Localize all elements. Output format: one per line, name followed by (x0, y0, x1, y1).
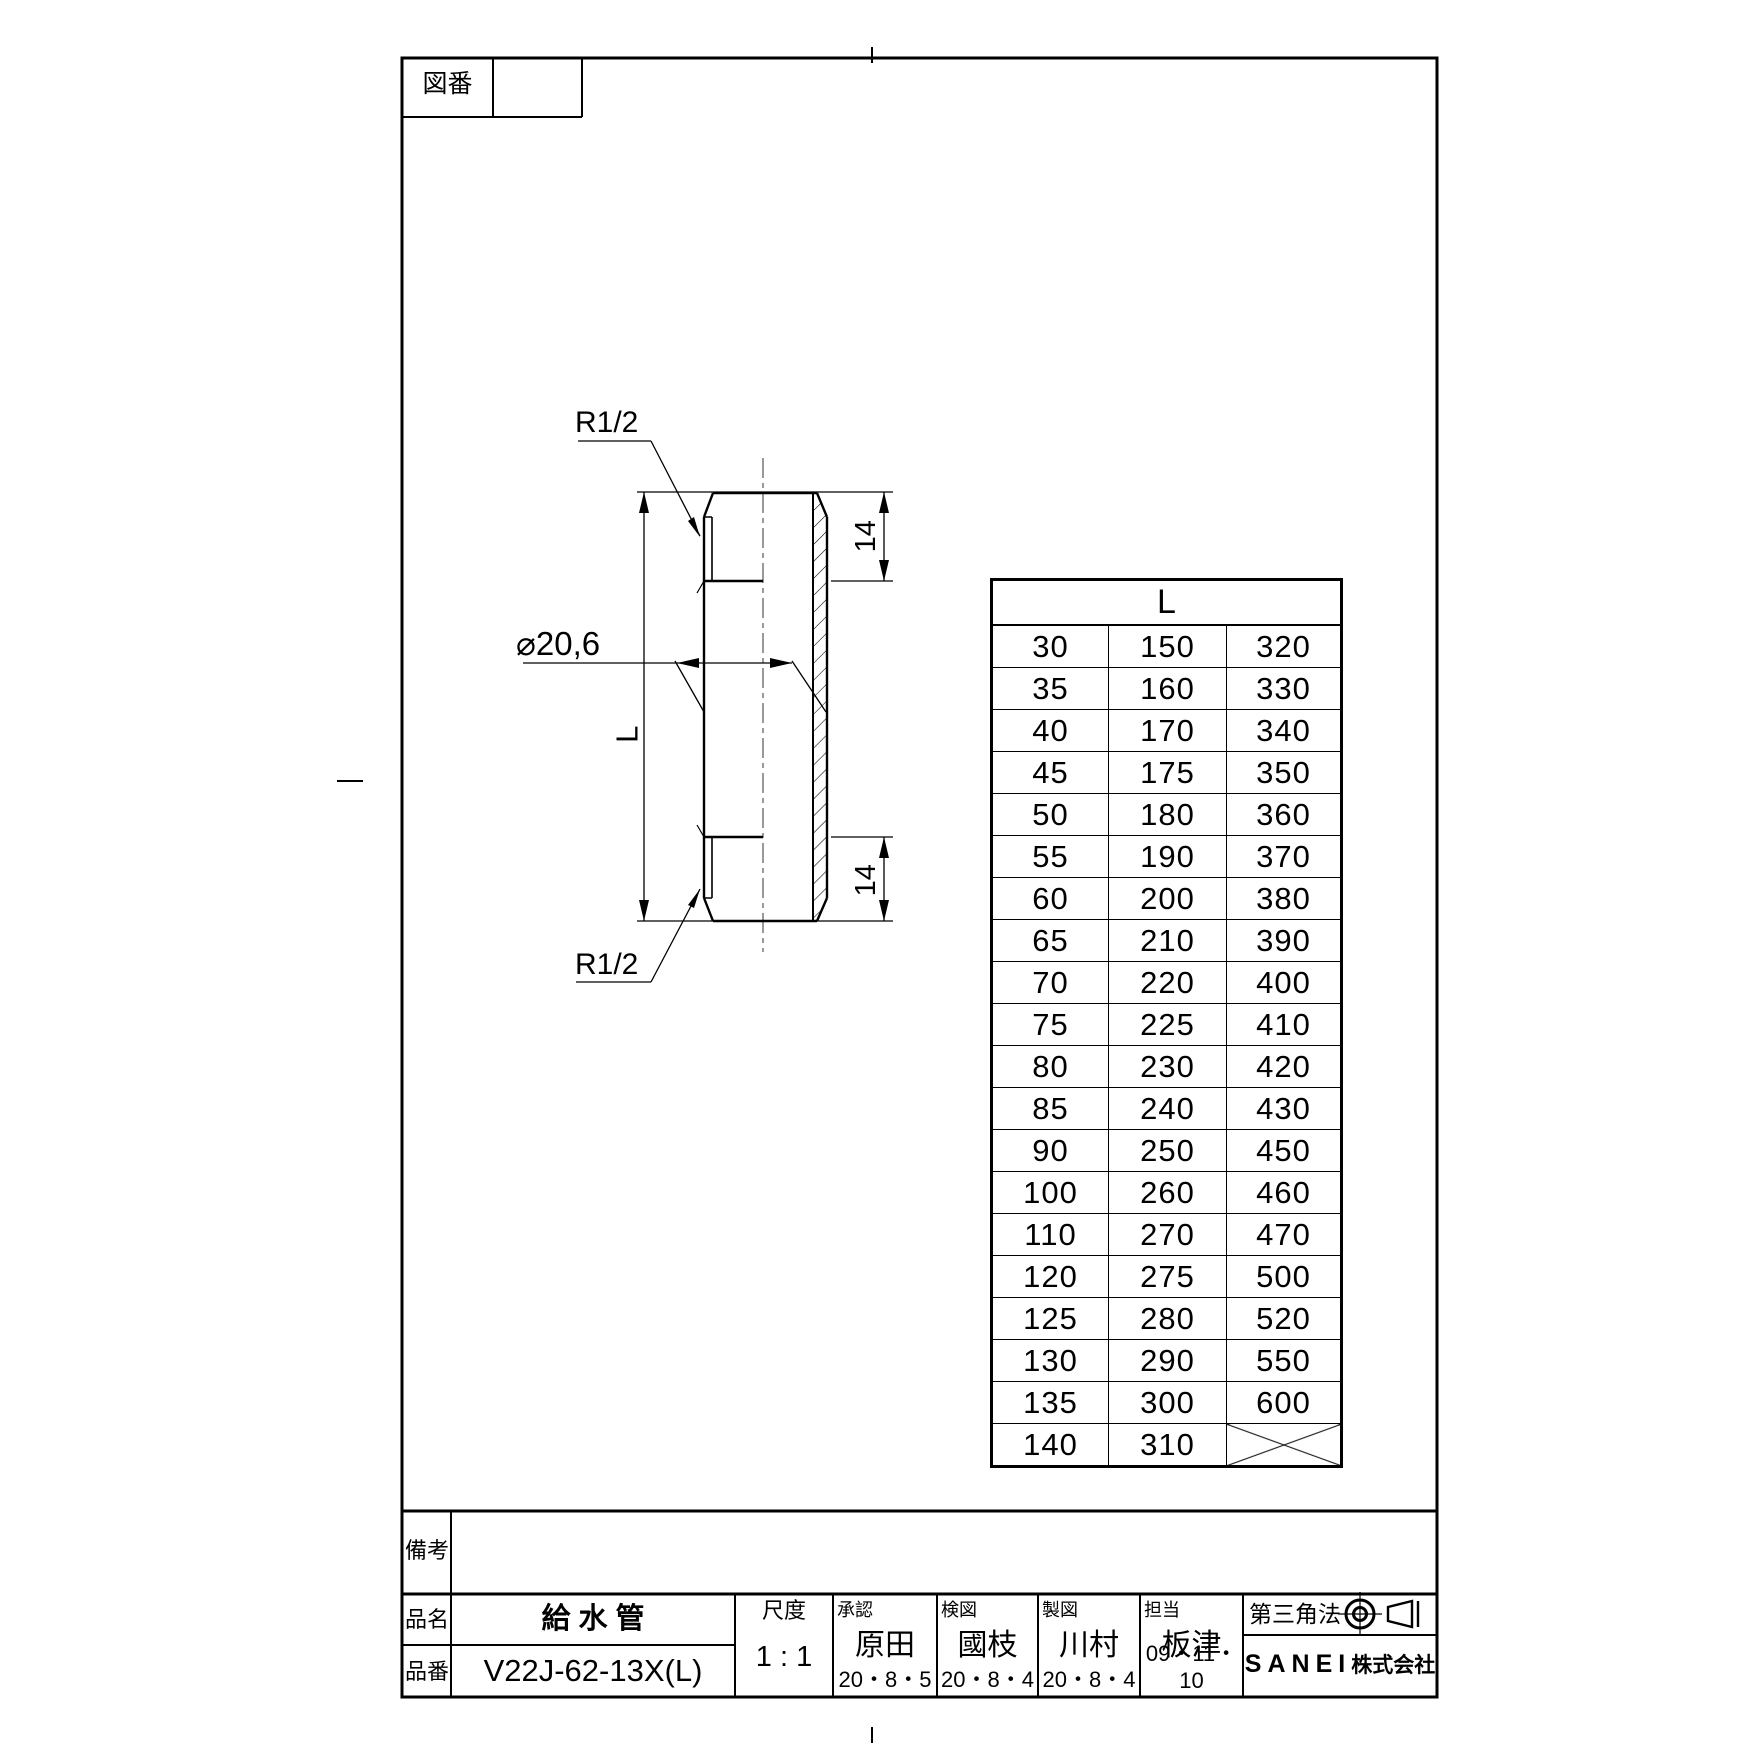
table-cell: 45 (992, 752, 1109, 794)
drafting-date: 20・8・4 (1038, 1662, 1140, 1694)
in-charge-date: 09・11・10 (1140, 1636, 1243, 1694)
section-hatching (813, 493, 827, 921)
table-cell: 160 (1109, 668, 1227, 710)
drafting-cell: 製図 川村 20・8・4 (1038, 1594, 1140, 1697)
scale-label: 尺度 (735, 1599, 833, 1622)
drafting-label: 製図 (1042, 1596, 1078, 1622)
table-row: 65210390 (992, 920, 1342, 962)
table-cell: 330 (1227, 668, 1342, 710)
diameter-label: ⌀20,6 (516, 627, 600, 662)
drawing-sheet: 図番 R1/2 R1/2 ⌀20,6 L 14 14 L 30150320 35… (0, 0, 1754, 1754)
centering-marks (337, 47, 872, 1743)
table-cell: 220 (1109, 962, 1227, 1004)
table-cell: 230 (1109, 1046, 1227, 1088)
table-cell: 310 (1109, 1424, 1227, 1467)
table-cell: 190 (1109, 836, 1227, 878)
dimension-arrowheads (639, 492, 889, 921)
table-cell: 40 (992, 710, 1109, 752)
table-cell: 85 (992, 1088, 1109, 1130)
table-header-L: L (992, 580, 1342, 626)
table-cell: 420 (1227, 1046, 1342, 1088)
table-cell: 210 (1109, 920, 1227, 962)
table-cell: 300 (1109, 1382, 1227, 1424)
product-name-label: 品名 (403, 1608, 451, 1631)
table-cell: 100 (992, 1172, 1109, 1214)
pipe-outline (704, 493, 827, 921)
table-cell: 470 (1227, 1214, 1342, 1256)
dimensions (523, 441, 893, 982)
table-cell: 400 (1227, 962, 1342, 1004)
remarks-label: 備考 (403, 1539, 451, 1562)
table-cell: 150 (1109, 625, 1227, 668)
table-cell: 110 (992, 1214, 1109, 1256)
table-cell: 270 (1109, 1214, 1227, 1256)
table-cell: 140 (992, 1424, 1109, 1467)
check-date: 20・8・4 (937, 1662, 1038, 1694)
table-cell: 370 (1227, 836, 1342, 878)
approval-date: 20・8・5 (833, 1662, 937, 1694)
table-cell: 125 (992, 1298, 1109, 1340)
projection-crosshair (1338, 1592, 1382, 1636)
table-cell: 180 (1109, 794, 1227, 836)
table-row: 135300600 (992, 1382, 1342, 1424)
thread-length-label-top: 14 (851, 516, 881, 556)
length-dimension-label: L (612, 712, 645, 756)
thread-size-label-bottom: R1/2 (575, 949, 638, 981)
table-row: 125280520 (992, 1298, 1342, 1340)
table-cell: 275 (1109, 1256, 1227, 1298)
thread-length-label-bottom: 14 (851, 860, 881, 900)
thread-root-lines (705, 517, 712, 898)
table-cell: 90 (992, 1130, 1109, 1172)
table-row: 90250450 (992, 1130, 1342, 1172)
table-cell-crossed-out (1227, 1424, 1342, 1467)
table-cell: 320 (1227, 625, 1342, 668)
table-row: 85240430 (992, 1088, 1342, 1130)
table-row: 40170340 (992, 710, 1342, 752)
table-cell: 450 (1227, 1130, 1342, 1172)
in-charge-label: 担当 (1144, 1596, 1180, 1622)
dimension-lines (523, 441, 893, 982)
table-cell: 75 (992, 1004, 1109, 1046)
table-cell: 550 (1227, 1340, 1342, 1382)
table-row: 60200380 (992, 878, 1342, 920)
table-cell: 60 (992, 878, 1109, 920)
table-cell: 135 (992, 1382, 1109, 1424)
table-cell: 50 (992, 794, 1109, 836)
third-angle-projection-icon (1338, 1592, 1418, 1636)
table-cell: 200 (1109, 878, 1227, 920)
check-cell: 検図 國枝 20・8・4 (937, 1594, 1038, 1697)
table-cell: 460 (1227, 1172, 1342, 1214)
drawing-number-label: 図番 (402, 71, 493, 97)
approval-name: 原田 (833, 1620, 937, 1664)
table-cell: 250 (1109, 1130, 1227, 1172)
table-cell: 225 (1109, 1004, 1227, 1046)
table-cell: 340 (1227, 710, 1342, 752)
table-cell: 520 (1227, 1298, 1342, 1340)
table-row: 75225410 (992, 1004, 1342, 1046)
scale-value: 1 : 1 (735, 1642, 833, 1672)
table-cell: 170 (1109, 710, 1227, 752)
table-row: 70220400 (992, 962, 1342, 1004)
in-charge-cell: 担当 板津 09・11・10 (1140, 1594, 1243, 1697)
part-number-label: 品番 (403, 1660, 451, 1683)
check-name: 國枝 (937, 1620, 1038, 1664)
approval-label: 承認 (837, 1596, 873, 1622)
projection-frustum (1388, 1601, 1412, 1627)
title-block-thick-lines (402, 1511, 1437, 1594)
company-logo: SANEI株式会社 (1243, 1651, 1437, 1677)
table-row: 30150320 (992, 625, 1342, 668)
table-cell: 240 (1109, 1088, 1227, 1130)
table-cell: 390 (1227, 920, 1342, 962)
table-cell: 55 (992, 836, 1109, 878)
length-variants-table: L 30150320 35160330 40170340 45175350 50… (990, 578, 1343, 1468)
drafting-name: 川村 (1038, 1620, 1140, 1664)
table-cell: 500 (1227, 1256, 1342, 1298)
company-name-jp: 株式会社 (1351, 1654, 1435, 1677)
table-row: 120275500 (992, 1256, 1342, 1298)
table-row: 130290550 (992, 1340, 1342, 1382)
table-cell: 80 (992, 1046, 1109, 1088)
table-row: 55190370 (992, 836, 1342, 878)
thread-size-label-top: R1/2 (575, 407, 638, 439)
table-cell: 130 (992, 1340, 1109, 1382)
table-cell: 30 (992, 625, 1109, 668)
table-row: 110270470 (992, 1214, 1342, 1256)
table-cell: 70 (992, 962, 1109, 1004)
approval-cell: 承認 原田 20・8・5 (833, 1594, 937, 1697)
table-cell: 600 (1227, 1382, 1342, 1424)
table-cell: 35 (992, 668, 1109, 710)
pipe-section-view (697, 458, 827, 952)
table-header-row: L (992, 580, 1342, 626)
table-cell: 260 (1109, 1172, 1227, 1214)
table-row: 100260460 (992, 1172, 1342, 1214)
table-cell: 380 (1227, 878, 1342, 920)
part-number-value: V22J-62-13X(L) (451, 1655, 735, 1688)
table-cell: 65 (992, 920, 1109, 962)
check-label: 検図 (941, 1596, 977, 1622)
table-row: 140310 (992, 1424, 1342, 1467)
table-row: 50180360 (992, 794, 1342, 836)
table-cell: 175 (1109, 752, 1227, 794)
table-cell: 360 (1227, 794, 1342, 836)
product-name-value: 給 水 管 (451, 1604, 735, 1634)
table-row: 35160330 (992, 668, 1342, 710)
table-cell: 290 (1109, 1340, 1227, 1382)
projection-method-label: 第三角法 (1249, 1602, 1341, 1626)
table-cell: 350 (1227, 752, 1342, 794)
table-cell: 280 (1109, 1298, 1227, 1340)
table-cell: 120 (992, 1256, 1109, 1298)
table-cell: 410 (1227, 1004, 1342, 1046)
table-row: 45175350 (992, 752, 1342, 794)
company-name-en: SANEI (1245, 1650, 1351, 1678)
table-row: 80230420 (992, 1046, 1342, 1088)
table-cell: 430 (1227, 1088, 1342, 1130)
